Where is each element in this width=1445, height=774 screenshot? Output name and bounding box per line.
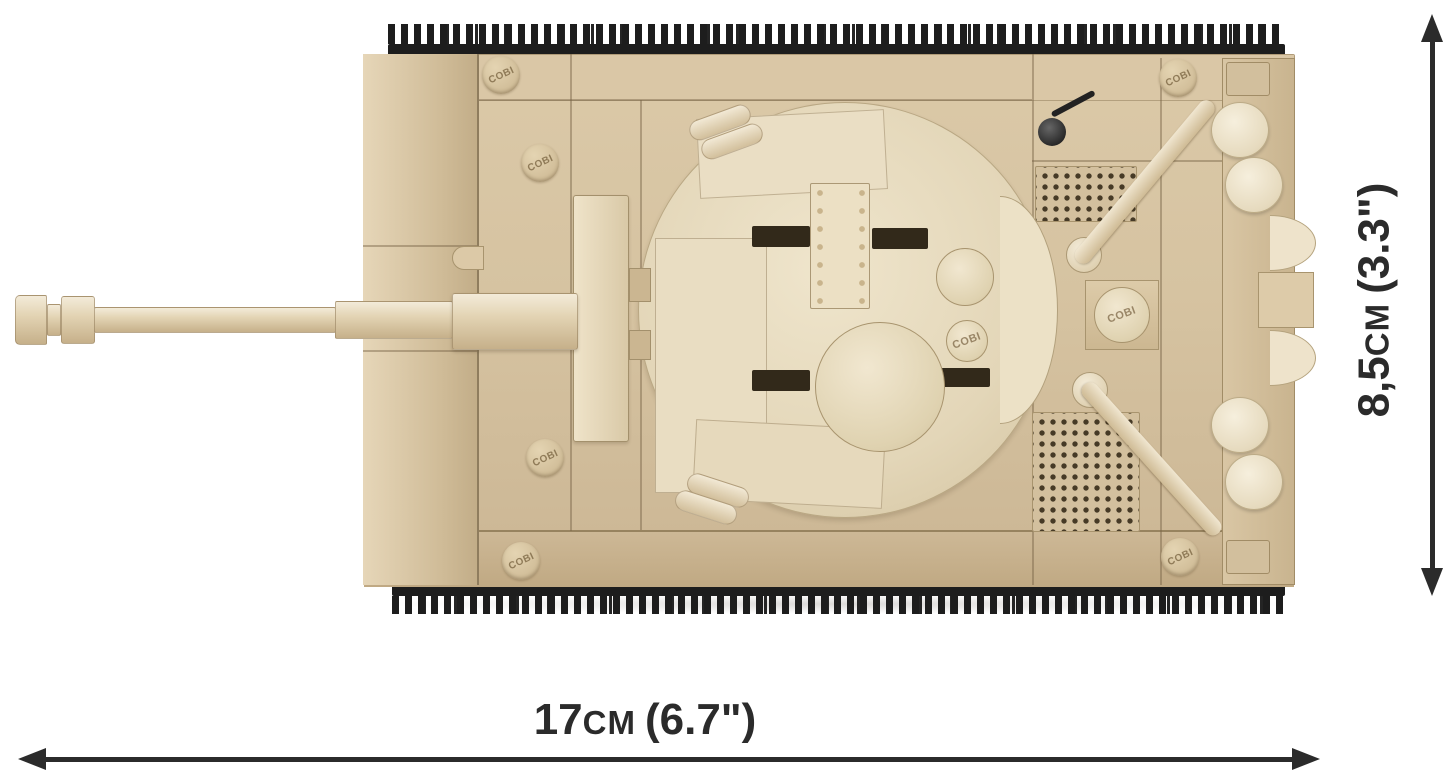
rear-hinge-block [1226,62,1270,96]
rear-hinge-block [1226,540,1270,574]
width-imperial: (6.7") [645,695,756,744]
brick-stud: COBI [1161,538,1199,576]
track-teeth [388,24,1285,44]
riveted-hatch-plate [810,183,870,309]
gun-barrel-thin [94,307,336,333]
turret-round-stud: COBI [946,320,988,362]
rear-bump [1270,215,1316,271]
antenna-base [1038,118,1066,146]
width-dimension-line [42,757,1296,762]
height-arrow-up [1421,14,1443,42]
stud-logo: COBI [486,64,515,85]
brick-stud: COBI [502,542,540,580]
width-value: 17 [534,695,583,744]
height-dimension-label: 8,5CM(3.3") [1336,30,1412,570]
stud-logo: COBI [530,447,559,468]
tank-track-bottom [392,583,1285,614]
vision-slot [752,226,810,247]
stud-logo: COBI [525,152,554,173]
panel-seam [479,99,1032,101]
muzzle-brake-ring [47,304,61,336]
muzzle-brake-body [61,296,95,344]
height-label-text: 8,5CM(3.3") [1349,183,1399,418]
stud-logo: COBI [1165,546,1194,567]
stud-logo: COBI [506,550,535,571]
brick-stud: COBI [482,56,520,94]
height-value: 8,5 [1349,356,1398,417]
height-arrow-down [1421,568,1443,596]
width-unit: CM [583,704,636,741]
brick-stud: COBI [526,439,564,477]
brick-stud: COBI [521,144,559,182]
vision-slot [938,368,990,387]
turret-round-hatch [936,248,994,306]
brick-stud: COBI [1159,59,1197,97]
rear-block [1258,272,1314,328]
track-teeth [392,596,1285,614]
rear-bump [1270,330,1316,386]
stud-logo: COBI [1163,67,1192,88]
height-unit: CM [1358,303,1395,356]
width-arrow-right [1292,748,1320,770]
product-image-canvas: COBI COBI COBI COBI COBI COBI COBI COBI [0,0,1445,774]
commander-cupola [815,322,945,452]
gun-barrel-mid [335,301,453,339]
stud-logo: COBI [1106,304,1138,325]
height-imperial: (3.3") [1349,183,1398,294]
stud-logo: COBI [951,330,983,351]
vision-slot [872,228,928,249]
gun-mantlet [573,195,629,442]
deck-round-stud: COBI [1094,287,1150,343]
hull-peg [452,246,484,270]
panel-seam [1160,58,1162,585]
width-dimension-label: 17CM(6.7") [0,695,1290,745]
spare-road-wheel [1211,102,1269,158]
tank-track-top [388,24,1285,57]
mantlet-connector [629,330,651,360]
spare-road-wheel [1225,454,1283,510]
vision-slot [752,370,810,391]
gun-barrel-base [452,293,578,350]
mantlet-connector [629,268,651,302]
height-dimension-line [1430,40,1435,570]
muzzle-brake-cap [15,295,47,345]
spare-road-wheel [1211,397,1269,453]
panel-seam [363,350,477,352]
spare-road-wheel [1225,157,1283,213]
